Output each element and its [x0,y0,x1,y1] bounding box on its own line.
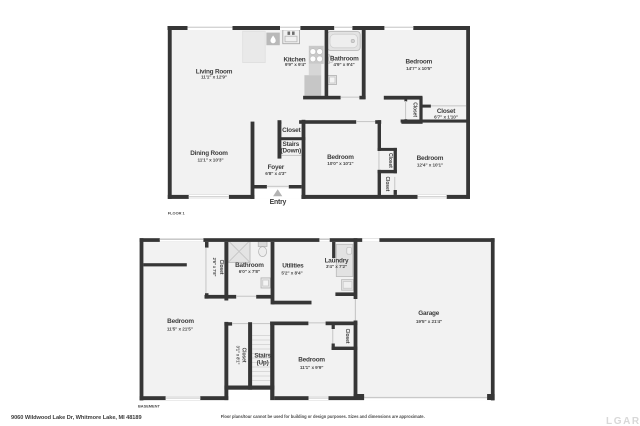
svg-text:Closet: Closet [387,153,393,168]
svg-text:9'9" x 9'4": 9'9" x 9'4" [285,62,306,67]
svg-text:LGAR: LGAR [606,416,640,426]
svg-text:Closet: Closet [412,102,418,117]
svg-text:Bedroom: Bedroom [167,318,194,325]
svg-text:14'7" x 10'5": 14'7" x 10'5" [406,66,432,71]
svg-text:9060 Wildwood Lake Dr, Whitmor: 9060 Wildwood Lake Dr, Whitmore Lake, MI… [11,415,142,421]
svg-text:(Up): (Up) [257,360,269,367]
svg-text:11'5" x 21'5": 11'5" x 21'5" [167,327,193,332]
svg-text:Garage: Garage [418,310,439,317]
svg-text:Entry: Entry [270,199,287,206]
svg-text:Bedroom: Bedroom [327,154,354,161]
svg-text:11'1" x 9'9": 11'1" x 9'9" [300,365,323,370]
svg-text:11'1" x 10'3": 11'1" x 10'3" [198,158,224,163]
svg-text:10'0" x 10'1": 10'0" x 10'1" [327,161,353,166]
svg-text:2'6" x 7'8": 2'6" x 7'8" [212,258,217,277]
svg-text:19'5" x 21'4": 19'5" x 21'4" [416,319,442,324]
svg-text:Bedroom: Bedroom [417,155,444,162]
svg-text:6'0" x 7'8": 6'0" x 7'8" [239,269,260,274]
svg-text:6'8" x 4'3": 6'8" x 4'3" [265,171,286,176]
svg-text:Dining Room: Dining Room [190,150,228,157]
svg-text:Stairs: Stairs [254,353,271,360]
svg-text:Utilities: Utilities [282,263,304,270]
svg-text:Closet: Closet [282,127,301,134]
svg-text:Bedroom: Bedroom [405,58,432,65]
svg-text:Bedroom: Bedroom [298,356,325,363]
svg-text:11'1" x 12'9": 11'1" x 12'9" [201,75,227,80]
svg-text:Closet: Closet [344,329,350,344]
svg-text:BASEMENT: BASEMENT [138,404,160,409]
svg-text:Closet: Closet [241,348,247,363]
svg-text:4'9" x 9'4": 4'9" x 9'4" [333,62,354,67]
svg-text:3'1" x 8'1": 3'1" x 8'1" [235,346,240,365]
svg-text:(Down): (Down) [281,147,302,154]
svg-text:5'2" x 8'4": 5'2" x 8'4" [281,270,302,275]
svg-text:Closet: Closet [384,177,390,192]
svg-text:Closet: Closet [218,260,224,275]
svg-text:FLOOR 1: FLOOR 1 [168,211,186,216]
svg-text:6'7" x 1'10": 6'7" x 1'10" [434,115,458,120]
svg-text:3'4" x 7'2": 3'4" x 7'2" [326,264,347,269]
svg-text:Floor plans/tour cannot be use: Floor plans/tour cannot be used for buil… [221,414,425,419]
svg-text:12'4" x 10'1": 12'4" x 10'1" [417,162,443,167]
